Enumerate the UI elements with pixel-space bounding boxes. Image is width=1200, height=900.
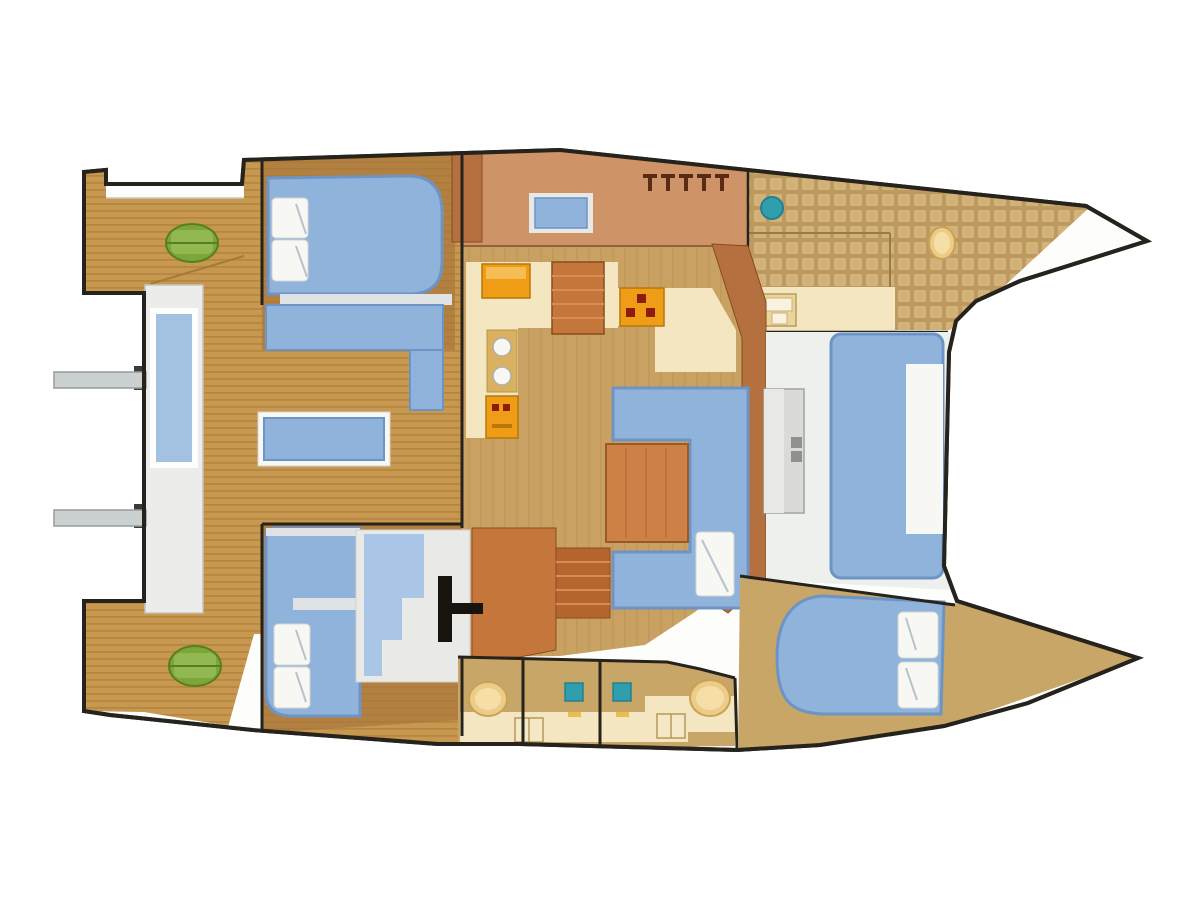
cleat-icon-1-stem [648,178,652,191]
aft-cabin-starboard-bed-frame-mid [293,598,357,610]
head-starboard-toilet-1-mark [568,712,581,717]
head-port-toilet-bowl [772,313,787,324]
head-port-basin-bowl [934,232,950,254]
galley-burner-3 [646,308,655,317]
head-starboard-toilet-1 [565,683,583,701]
head-port-toilet-tank [766,298,792,311]
entry-door-icon-bar [452,603,483,614]
aft-platform-starboard [84,601,144,712]
davit-bar-lower [54,510,146,526]
cleat-icon-2-bar [661,174,675,178]
galley-appliance-knob-1 [492,404,499,411]
head-port-shower-drain [761,197,783,219]
davit-bar-upper [54,372,146,388]
galley-burner-1 [637,294,646,303]
aft-cabin-port-pillow-2 [272,240,308,281]
salon-table [606,444,688,542]
galley-appliance-line [492,424,512,428]
head-starboard-toilet-2-mark [616,712,629,717]
cleat-icon-2-stem [666,178,670,191]
galley-cooktop [620,288,664,326]
galley-sink-2 [493,367,511,385]
fwd-cabin-port-bed-inset [906,364,943,534]
cockpit-bench [264,418,384,460]
companionway-port [552,262,604,334]
aft-cabin-port-pillow-1 [272,198,308,238]
cleat-icon-4-bar [697,174,711,178]
galley-appliance-knob-2 [503,404,510,411]
cleat-icon-5-stem [720,178,724,191]
fwd-cabin-starboard-pillow-2 [898,662,938,708]
aft-cabin-port-locker [452,153,482,242]
aft-cabin-starboard-bed-frame-top [266,528,360,536]
head-starboard-shower-bowl [696,686,724,710]
port-settee-horizontal [266,305,443,350]
cleat-icon-4-stem [702,178,706,191]
head-starboard-wall-right [735,678,737,748]
aft-cabin-starboard-pillow-2 [274,667,310,708]
cleat-icon-5-bar [715,174,729,178]
entry-door-icon-stem [438,576,452,642]
head-starboard-basin-left-bowl [475,688,501,710]
fwd-cabin-port-handle-2 [791,451,802,462]
cleat-icon-1-bar [643,174,657,178]
galley-appliance-lower [486,396,518,438]
companionway-starboard-steps [556,548,610,618]
fwd-cabin-port-wardrobe-door [764,389,784,513]
galley-oven-door [486,267,526,279]
galley-sink-1 [493,338,511,356]
cleat-icon-3-stem [684,178,688,191]
floorplan-canvas [0,0,1200,900]
aft-cabin-port-bed-frame [280,294,452,305]
fwd-cabin-starboard-pillow-1 [898,612,938,658]
cleat-icon-3-bar [679,174,693,178]
roof-hatch [535,198,587,228]
companionway-starboard-wood [472,528,556,657]
head-starboard-toilet-2 [613,683,631,701]
catamaran-floorplan [0,0,1200,900]
fwd-cabin-port-handle-1 [791,437,802,448]
transom-window [156,314,192,462]
port-settee-vertical [410,350,443,410]
galley-burner-2 [626,308,635,317]
